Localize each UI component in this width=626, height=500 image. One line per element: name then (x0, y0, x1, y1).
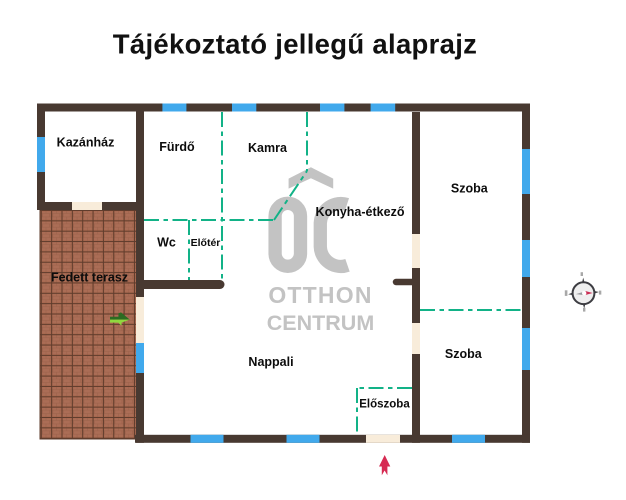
svg-text:Fürdő: Fürdő (159, 140, 195, 154)
svg-text:Nappali: Nappali (248, 355, 293, 369)
svg-text:Előtér: Előtér (191, 237, 221, 249)
svg-text:Wc: Wc (157, 236, 176, 250)
svg-text:CENTRUM: CENTRUM (267, 311, 375, 335)
svg-text:Tájékoztató jellegű alaprajz: Tájékoztató jellegű alaprajz (113, 29, 477, 60)
svg-text:Fedett terasz: Fedett terasz (51, 271, 128, 285)
svg-text:Kamra: Kamra (248, 141, 288, 155)
svg-text:Kazánház: Kazánház (57, 136, 115, 150)
svg-text:Szoba: Szoba (445, 347, 483, 361)
svg-text:Szoba: Szoba (451, 181, 489, 195)
svg-text:Konyha-étkező: Konyha-étkező (316, 205, 405, 219)
svg-text:OTTHON: OTTHON (268, 282, 372, 308)
svg-text:Előszoba: Előszoba (359, 399, 410, 411)
